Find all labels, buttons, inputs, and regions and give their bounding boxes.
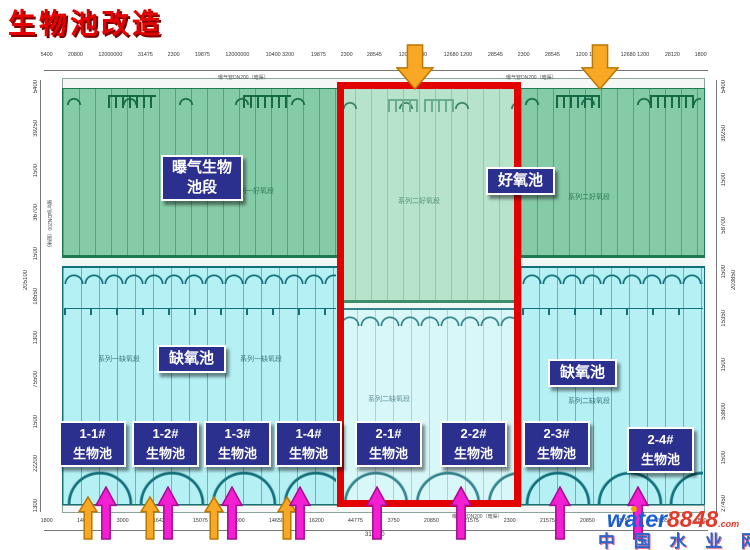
dim-number: 12000000 xyxy=(98,52,122,57)
dim-number: 12000000 xyxy=(226,52,250,57)
outlet-arrow-up-magenta xyxy=(221,486,243,540)
dim-number: 12680 1200 xyxy=(621,52,650,57)
label-pool-2-3: 2-3# 生物池 xyxy=(523,421,590,467)
dim-number: 12680 1200 xyxy=(443,52,472,57)
dimension-line-right xyxy=(716,80,717,512)
pool-suffix: 生物池 xyxy=(629,450,692,470)
dim-number: 28545 xyxy=(545,52,560,57)
watermark-number: 8848 xyxy=(667,506,718,532)
watermark-dot-icon xyxy=(631,506,637,512)
pipe-note: 曝气管DN200（暗渠） xyxy=(506,74,557,81)
dimension-total-right: 203850 xyxy=(731,270,737,290)
pool-id: 2-4# xyxy=(629,430,692,450)
pipe-note: 曝气管DN200（暗渠） xyxy=(218,74,269,81)
diffuser-comb xyxy=(243,95,291,108)
pool-suffix: 生物池 xyxy=(61,444,124,464)
dim-number: 28545 xyxy=(488,52,503,57)
dim-number: 1500 xyxy=(721,451,727,464)
outlet-arrow-up-magenta xyxy=(450,486,472,540)
dim-number: 58700 xyxy=(721,217,727,234)
dim-number: 39250 xyxy=(33,120,39,137)
inlet-arrow-down xyxy=(581,44,619,90)
walkway-divider xyxy=(62,256,338,268)
pool-id: 1-3# xyxy=(206,424,269,444)
dim-number: 18550 xyxy=(33,288,39,305)
dim-number: 1500 xyxy=(33,164,39,177)
dim-number: 1500 xyxy=(33,247,39,260)
diffuser-comb xyxy=(556,95,600,108)
dim-number: 28545 xyxy=(367,52,382,57)
dim-number: 1300 xyxy=(33,499,39,512)
dim-number: 22200 xyxy=(33,455,39,472)
dim-number: 2300 xyxy=(168,52,180,57)
label-line2: 池段 xyxy=(169,178,235,198)
diffuser-comb xyxy=(108,95,156,108)
dim-number: 20800 xyxy=(68,52,83,57)
pipe-gallery-line xyxy=(64,308,336,315)
pool-suffix: 生物池 xyxy=(134,444,197,464)
pool-id: 2-3# xyxy=(525,424,588,444)
dim-number: 20850 xyxy=(580,518,595,523)
dim-number: 20850 xyxy=(424,518,439,523)
dim-number: 10400 3200 xyxy=(266,52,295,57)
dimension-total-left: 205100 xyxy=(23,270,29,290)
dim-number: 31475 xyxy=(138,52,153,57)
outlet-arrow-up-magenta xyxy=(157,486,179,540)
pool-id: 1-1# xyxy=(61,424,124,444)
pool-suffix: 生物池 xyxy=(525,444,588,464)
dim-number: 1500 xyxy=(33,415,39,428)
watermark: water8848.com 中 国 水 业 网 xyxy=(598,508,748,550)
dim-number: 1800 xyxy=(41,518,53,523)
dim-number: 5400 xyxy=(33,80,39,93)
pool-suffix: 生物池 xyxy=(277,444,340,464)
dim-number: 19875 xyxy=(310,52,325,57)
dim-number: 3000 xyxy=(117,518,129,523)
series1-anoxic-text: 系列一缺氧段 xyxy=(240,354,282,364)
walkway-divider xyxy=(520,256,705,268)
dim-number: 2300 xyxy=(518,52,530,57)
watermark-site-name: 中 国 水 业 网 xyxy=(598,533,748,550)
label-pool-2-1: 2-1# 生物池 xyxy=(355,421,422,467)
pool-id: 1-2# xyxy=(134,424,197,444)
label-anoxic-tank-right: 缺氧池 xyxy=(548,359,617,387)
dim-number: 2300 xyxy=(340,52,352,57)
channel-arches xyxy=(522,270,703,284)
dim-number: 1300 xyxy=(33,331,39,344)
watermark-logo: water8848.com xyxy=(598,508,748,531)
outlet-arrow-up-magenta xyxy=(289,486,311,540)
dim-number: 1500 xyxy=(721,358,727,371)
page-title: 生物池改造 xyxy=(8,2,163,42)
pool-id: 1-4# xyxy=(277,424,340,444)
series2-anoxic-text: 系列二缺氧段 xyxy=(568,396,610,406)
pipe-note-vertical: 曝气管DN200（暗渠） xyxy=(46,200,53,251)
outlet-arrow-up-magenta xyxy=(366,486,388,540)
label-pool-1-1: 1-1# 生物池 xyxy=(59,421,126,467)
dim-number: 1500 xyxy=(721,265,727,278)
dim-number: 19875 xyxy=(195,52,210,57)
pool-suffix: 生物池 xyxy=(206,444,269,464)
label-pool-2-4: 2-4# 生物池 xyxy=(627,427,694,473)
dim-number: 5400 xyxy=(41,52,53,57)
watermark-domain: .com xyxy=(718,519,739,529)
series2-aerobic-text: 系列二好氧段 xyxy=(568,192,610,202)
outlet-arrow-up-magenta xyxy=(549,486,571,540)
pool-id: 2-2# xyxy=(442,424,505,444)
dim-number: 15350 xyxy=(721,310,727,327)
label-pool-1-2: 1-2# 生物池 xyxy=(132,421,199,467)
dimension-line-left xyxy=(40,80,41,512)
aeration-arcs xyxy=(66,95,334,105)
label-aeration-bio-section: 曝气生物 池段 xyxy=(161,155,243,201)
pool-id: 2-1# xyxy=(357,424,420,444)
series1-anoxic-text: 系列一缺氧段 xyxy=(98,354,140,364)
pool-suffix: 生物池 xyxy=(442,444,505,464)
dim-number: 39250 xyxy=(721,125,727,142)
dim-number: 1800 xyxy=(695,52,707,57)
dim-number: 44775 xyxy=(348,518,363,523)
dim-number: 3750 xyxy=(388,518,400,523)
dim-number: 1500 xyxy=(721,173,727,186)
label-line1: 曝气生物 xyxy=(169,158,235,178)
label-pool-1-3: 1-3# 生物池 xyxy=(204,421,271,467)
label-aerobic-tank: 好氧池 xyxy=(486,167,555,195)
label-pool-1-4: 1-4# 生物池 xyxy=(275,421,342,467)
dim-number: 36700 xyxy=(33,204,39,221)
label-anoxic-tank-left: 缺氧池 xyxy=(157,345,226,373)
watermark-brand: water xyxy=(607,506,667,532)
pipe-gallery-line xyxy=(522,308,703,315)
dim-number: 75500 xyxy=(33,371,39,388)
channel-arches xyxy=(64,270,336,284)
outlet-arrow-up-magenta xyxy=(95,486,117,540)
dim-number: 28120 xyxy=(665,52,680,57)
dimension-col-right: 5400392501500587001500153501500538001500… xyxy=(720,80,728,512)
pool-suffix: 生物池 xyxy=(357,444,420,464)
dimension-col-left: 5400392501500367001500185501300755001500… xyxy=(32,80,40,512)
label-pool-2-2: 2-2# 生物池 xyxy=(440,421,507,467)
dim-number: 2300 xyxy=(503,518,515,523)
diffuser-comb xyxy=(650,95,694,108)
dim-number: 53800 xyxy=(721,403,727,420)
dim-number: 5400 xyxy=(721,80,727,93)
slide-canvas: 生物池改造 5400208001200000031475230019875120… xyxy=(0,0,750,550)
inlet-arrow-down xyxy=(396,44,434,90)
